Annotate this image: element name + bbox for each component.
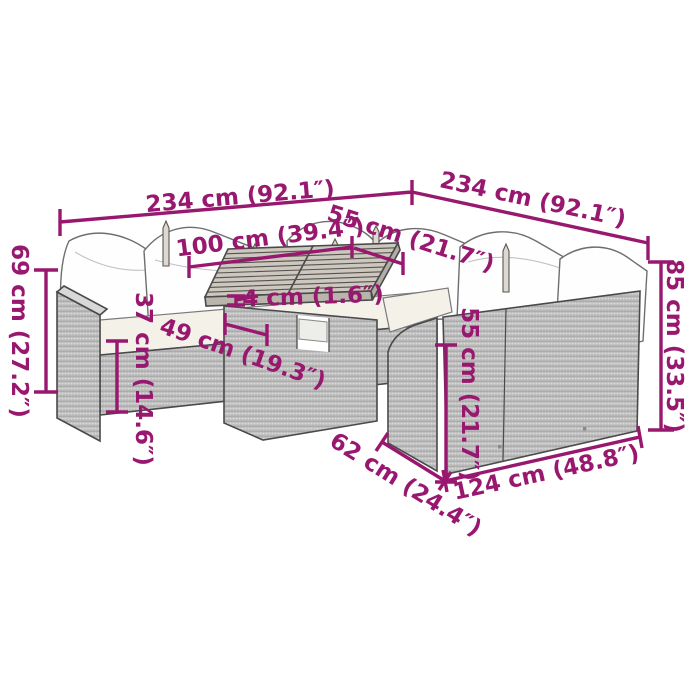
dim-label-total-height: 85 cm (33.5″) [661, 259, 687, 433]
dimension-diagram-page: 234 cm (92.1″) 234 cm (92.1″) 100 cm (39… [0, 0, 700, 700]
dim-label-back-height: 69 cm (27.2″) [6, 244, 32, 418]
dim-label-tabletop-thickness: 4 cm (1.6″) [242, 282, 384, 313]
dim-label-width-right: 234 cm (92.1″) [437, 167, 628, 232]
dim-seat-back-height: 55 cm (21.7″) [435, 307, 482, 482]
sofa-set-dimension-diagram: 234 cm (92.1″) 234 cm (92.1″) 100 cm (39… [0, 0, 700, 700]
panel-hole [498, 445, 502, 449]
dim-total-height: 85 cm (33.5″) [648, 259, 687, 433]
rattan-back-panel-left [388, 318, 437, 471]
dim-label-width-left: 234 cm (92.1″) [144, 176, 335, 218]
dim-back-height: 69 cm (27.2″) [6, 244, 58, 418]
table-base-gap-cushion [299, 319, 327, 342]
peg [503, 244, 509, 292]
peg [163, 221, 169, 266]
dim-label-base-height: 37 cm (14.6″) [130, 292, 156, 466]
dim-tabletop-thickness: 4 cm (1.6″) [227, 282, 384, 313]
dim-label-seat-back-height: 55 cm (21.7″) [456, 307, 482, 481]
armrest [57, 292, 100, 441]
panel-hole [583, 427, 587, 431]
